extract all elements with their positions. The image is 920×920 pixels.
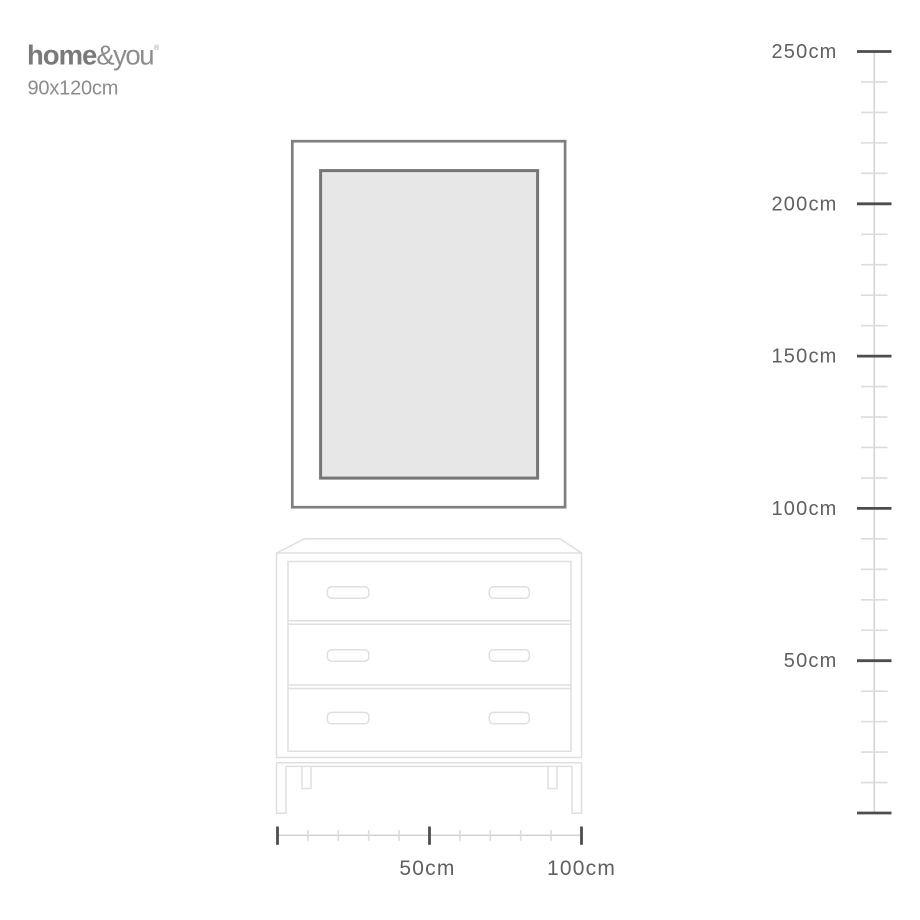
svg-text:®: ®: [154, 44, 160, 52]
svg-text:50cm: 50cm: [399, 857, 455, 880]
svg-text:250cm: 250cm: [771, 41, 837, 63]
svg-text:100cm: 100cm: [547, 857, 616, 880]
svg-text:100cm: 100cm: [771, 498, 837, 520]
svg-text:150cm: 150cm: [771, 346, 837, 368]
svg-text:home&you: home&you: [27, 40, 153, 71]
svg-text:50cm: 50cm: [784, 650, 838, 672]
svg-text:90x120cm: 90x120cm: [28, 78, 119, 100]
svg-text:200cm: 200cm: [771, 193, 837, 215]
